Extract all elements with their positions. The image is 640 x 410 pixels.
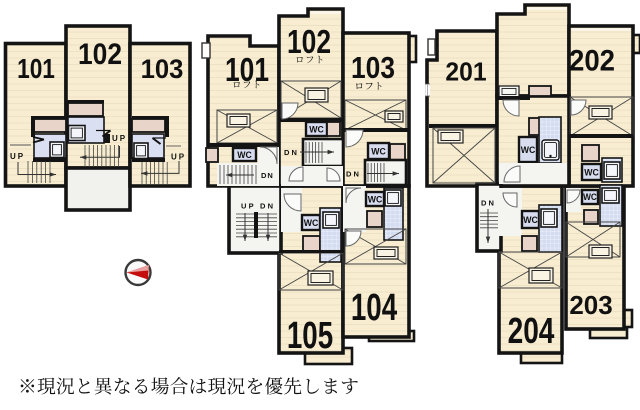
svg-text:UP DN: UP DN <box>241 202 275 211</box>
svg-text:D N: D N <box>284 148 297 157</box>
svg-text:102: 102 <box>287 24 331 60</box>
svg-text:UP: UP <box>112 134 127 143</box>
svg-text:102: 102 <box>78 36 122 70</box>
svg-text:WC: WC <box>584 167 599 177</box>
svg-text:WC: WC <box>368 194 383 204</box>
svg-text:WC: WC <box>237 150 252 160</box>
svg-text:D N: D N <box>481 199 494 208</box>
svg-text:WC: WC <box>304 218 319 228</box>
svg-text:WC: WC <box>523 215 538 225</box>
svg-text:103: 103 <box>141 53 184 84</box>
svg-text:WC: WC <box>521 145 536 155</box>
svg-text:202: 202 <box>569 44 615 77</box>
svg-text:201: 201 <box>445 58 486 87</box>
svg-text:203: 203 <box>569 290 612 320</box>
svg-text:105: 105 <box>287 315 333 357</box>
svg-text:104: 104 <box>351 287 398 329</box>
svg-text:DN: DN <box>261 171 274 180</box>
svg-text:WC: WC <box>583 192 597 202</box>
svg-text:WC: WC <box>371 146 386 156</box>
svg-text:101: 101 <box>17 54 55 85</box>
svg-text:UP: UP <box>171 153 186 162</box>
svg-text:UP: UP <box>10 152 25 161</box>
svg-text:WC: WC <box>309 124 324 134</box>
svg-text:103: 103 <box>351 51 395 85</box>
svg-text:D N: D N <box>346 170 359 179</box>
svg-text:101: 101 <box>225 52 269 88</box>
svg-text:204: 204 <box>508 311 555 351</box>
